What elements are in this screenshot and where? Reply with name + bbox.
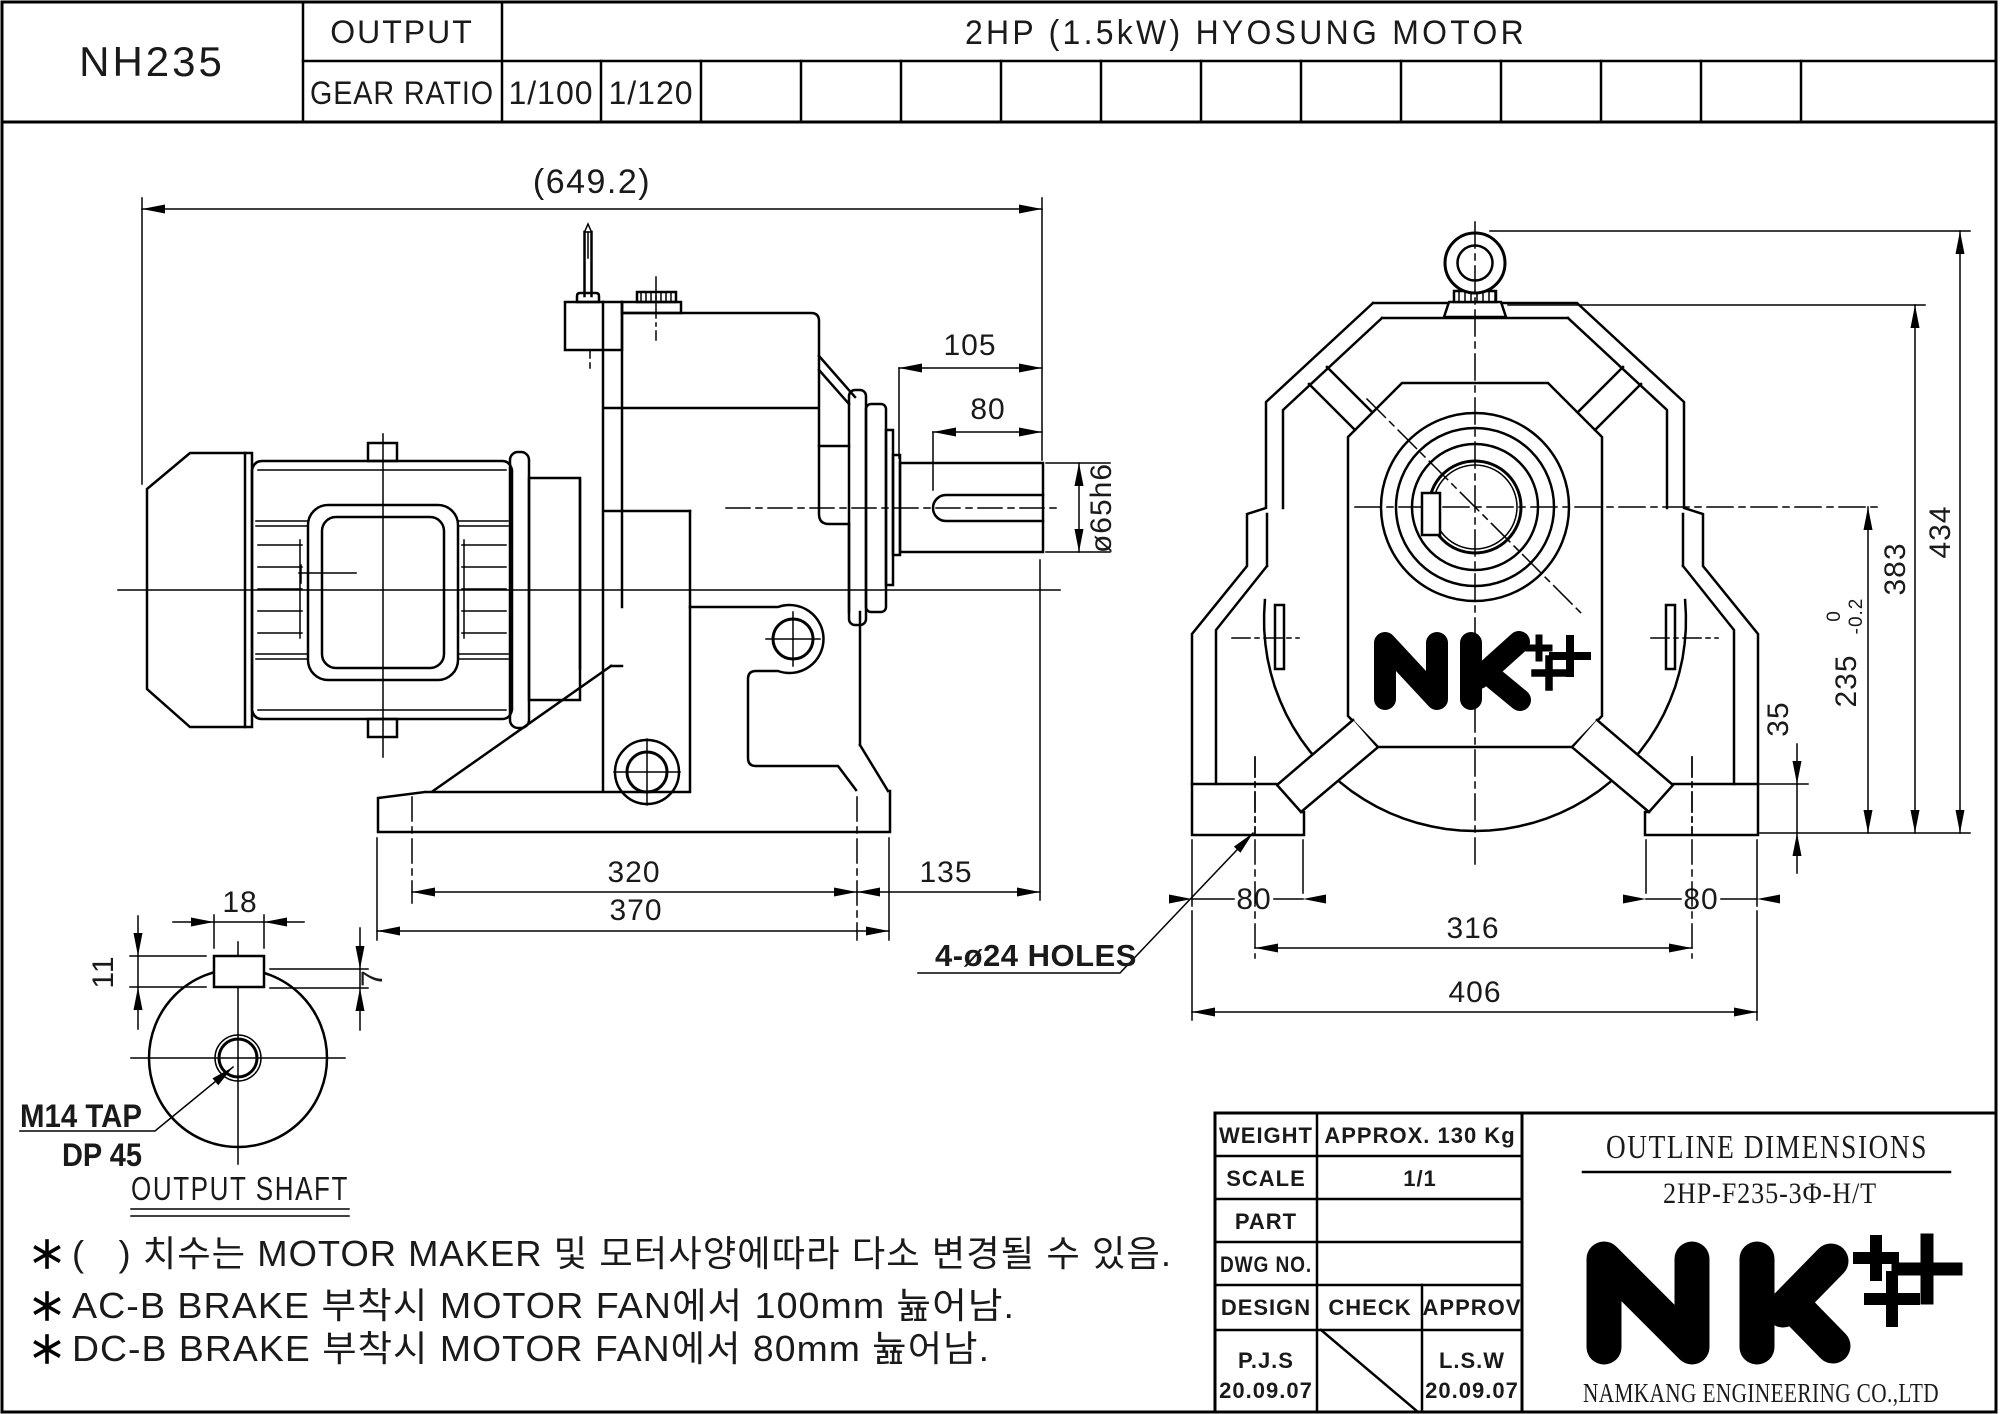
svg-text:OUTPUT: OUTPUT [330, 14, 474, 50]
svg-text:18: 18 [222, 886, 257, 919]
svg-text:CHECK: CHECK [1328, 1295, 1411, 1320]
svg-text:20.09.07: 20.09.07 [1425, 1378, 1519, 1403]
svg-text:L.S.W: L.S.W [1439, 1348, 1505, 1373]
svg-text:2HP-F235-3Φ-H/T: 2HP-F235-3Φ-H/T [1663, 1177, 1877, 1210]
svg-text:APPROX. 130 Kg: APPROX. 130 Kg [1324, 1123, 1515, 1148]
svg-text:370: 370 [609, 894, 662, 927]
svg-text:DWG NO.: DWG NO. [1220, 1252, 1312, 1277]
svg-text:2HP (1.5kW) HYOSUNG MOTOR: 2HP (1.5kW) HYOSUNG MOTOR [965, 14, 1527, 52]
svg-text:235: 235 [1830, 654, 1863, 707]
svg-text:DP 45: DP 45 [62, 1137, 142, 1173]
svg-text:NAMKANG ENGINEERING CO.,LTD: NAMKANG ENGINEERING CO.,LTD [1583, 1378, 1939, 1408]
svg-text:1/1: 1/1 [1403, 1166, 1437, 1191]
svg-text:105: 105 [943, 329, 996, 362]
svg-text:DC-B BRAKE 부착시 MOTOR FAN에서 80m: DC-B BRAKE 부착시 MOTOR FAN에서 80mm 늂어남. [72, 1328, 990, 1369]
svg-text:4-ø24 HOLES: 4-ø24 HOLES [935, 938, 1137, 973]
svg-text:35: 35 [1762, 701, 1795, 736]
svg-text:1/100: 1/100 [508, 75, 593, 111]
svg-text:( ) 치수는 MOTOR MAKER 및 모터사양에따: ( ) 치수는 MOTOR MAKER 및 모터사양에따라 다소 변경될 수 있… [72, 1233, 1172, 1274]
svg-text:P.J.S: P.J.S [1238, 1348, 1294, 1373]
svg-text:APPROV: APPROV [1423, 1295, 1522, 1320]
svg-text:1/120: 1/120 [608, 75, 693, 111]
svg-text:383: 383 [1879, 542, 1912, 595]
svg-text:M14 TAP: M14 TAP [20, 1098, 142, 1134]
svg-text:406: 406 [1448, 976, 1501, 1009]
svg-text:GEAR RATIO: GEAR RATIO [310, 75, 494, 111]
svg-text:(649.2): (649.2) [533, 163, 651, 201]
svg-text:AC-B BRAKE 부착시 MOTOR FAN에서 100: AC-B BRAKE 부착시 MOTOR FAN에서 100mm 늂어남. [72, 1285, 1015, 1326]
svg-text:OUTLINE DIMENSIONS: OUTLINE DIMENSIONS [1606, 1129, 1928, 1166]
svg-text:0: 0 [1824, 610, 1845, 622]
svg-text:PART: PART [1235, 1209, 1297, 1234]
svg-text:NH235: NH235 [79, 38, 225, 85]
svg-text:320: 320 [607, 856, 660, 889]
svg-text:80: 80 [1683, 883, 1718, 916]
svg-text:-0.2: -0.2 [1846, 598, 1867, 635]
svg-text:20.09.07: 20.09.07 [1219, 1378, 1313, 1403]
svg-text:DESIGN: DESIGN [1221, 1295, 1311, 1320]
svg-text:SCALE: SCALE [1226, 1166, 1306, 1191]
svg-text:7: 7 [356, 969, 389, 987]
svg-text:OUTPUT SHAFT: OUTPUT SHAFT [131, 1170, 349, 1207]
svg-text:316: 316 [1446, 912, 1499, 945]
svg-text:80: 80 [1236, 883, 1271, 916]
svg-text:135: 135 [919, 856, 972, 889]
svg-text:ø65h6: ø65h6 [1085, 463, 1118, 553]
svg-text:80: 80 [970, 393, 1005, 426]
svg-text:WEIGHT: WEIGHT [1219, 1123, 1313, 1148]
svg-text:434: 434 [1924, 505, 1957, 558]
svg-text:11: 11 [87, 955, 120, 988]
